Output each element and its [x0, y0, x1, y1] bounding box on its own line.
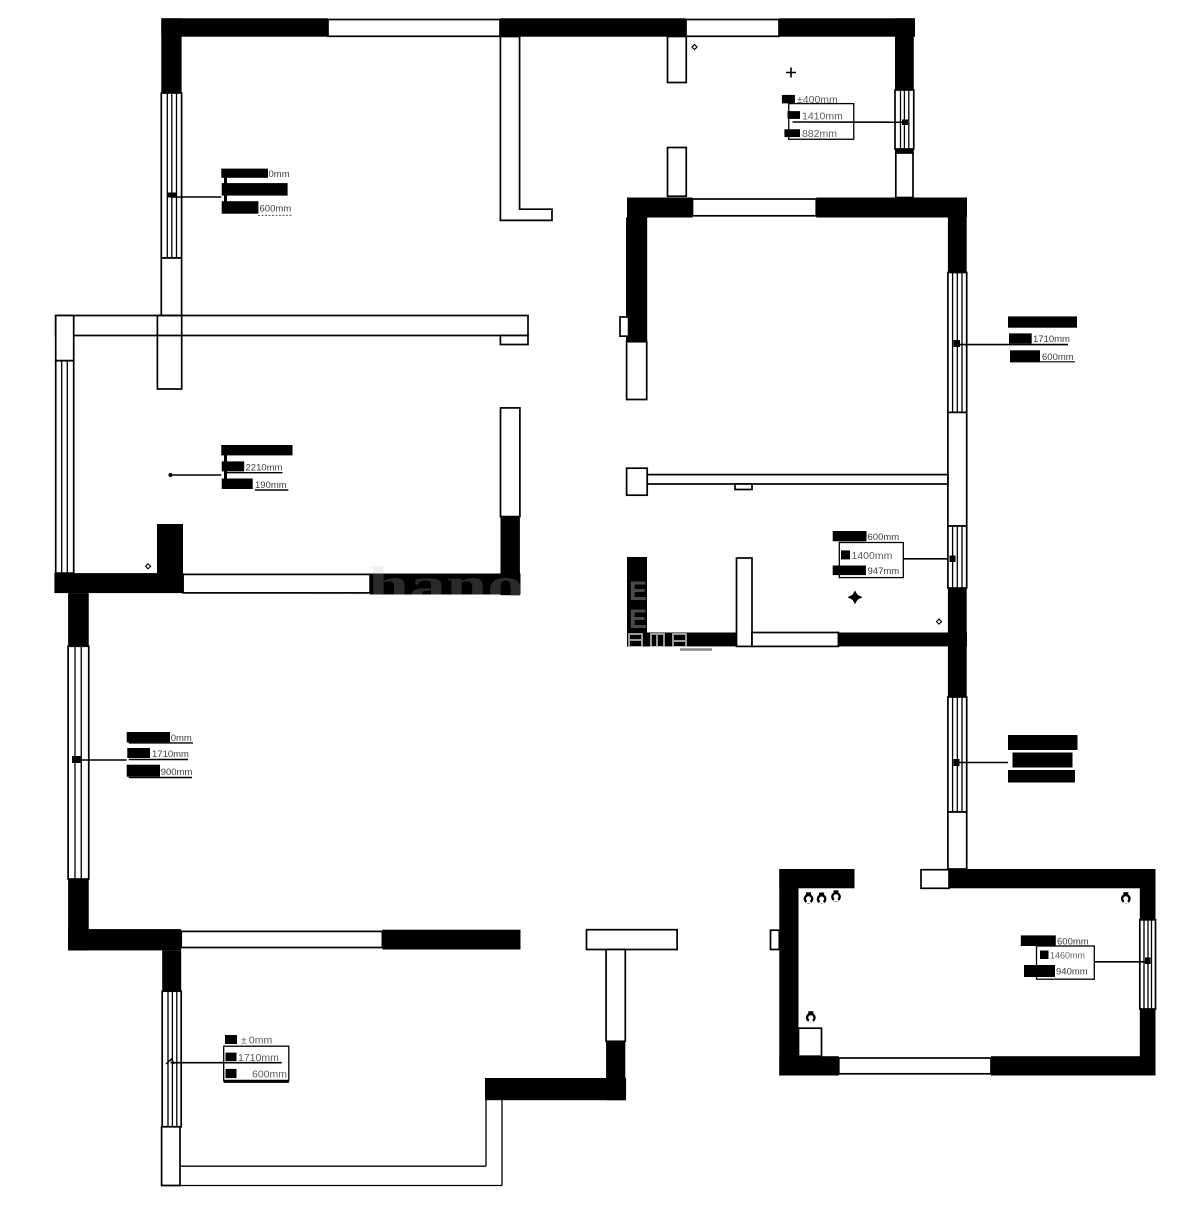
svg-text:± 0mm: ± 0mm [241, 1035, 272, 1047]
svg-text:947mm: 947mm [868, 566, 900, 577]
svg-text:1410mm: 1410mm [802, 110, 843, 122]
svg-text:E: E [629, 604, 647, 634]
svg-text:600mm: 600mm [260, 203, 292, 214]
svg-text:E: E [629, 576, 647, 606]
svg-text:0mm: 0mm [269, 169, 290, 180]
svg-text:1460mm: 1460mm [1050, 951, 1085, 961]
svg-text:940mm: 940mm [1056, 967, 1088, 978]
svg-text:600mm: 600mm [252, 1069, 287, 1081]
svg-text:600mm: 600mm [868, 532, 900, 543]
svg-text:190mm: 190mm [255, 480, 287, 491]
svg-text:1710mm: 1710mm [152, 749, 189, 760]
svg-text:1710mm: 1710mm [1033, 334, 1070, 345]
svg-text:882mm: 882mm [802, 128, 837, 140]
svg-text:2210mm: 2210mm [246, 463, 283, 474]
svg-text:600mm: 600mm [1042, 352, 1074, 363]
svg-text:900mm: 900mm [161, 767, 193, 778]
svg-text:1400mm: 1400mm [852, 550, 893, 562]
